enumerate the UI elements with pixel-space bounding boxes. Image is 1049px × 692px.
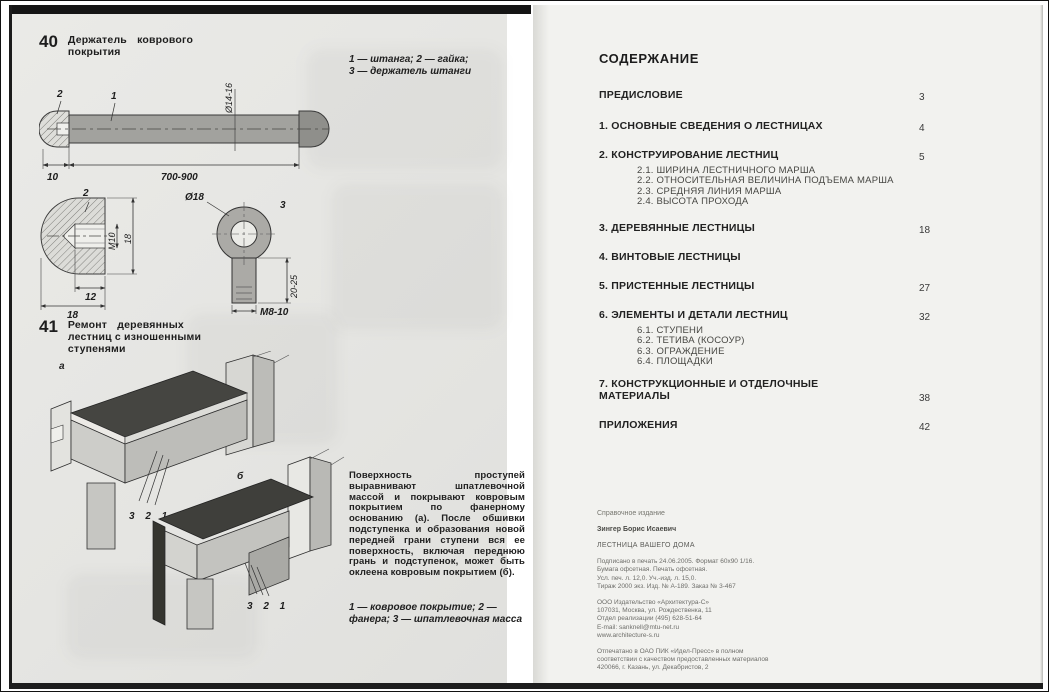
toc-page-number: 5 xyxy=(919,152,925,163)
toc-label: 7. КОНСТРУКЦИОННЫЕ И ОТДЕЛОЧНЫЕ МАТЕРИАЛ… xyxy=(599,378,859,402)
figure-41-text: Поверхность проступей выравнивают шпатле… xyxy=(349,471,525,579)
dim-rod-length: 700-900 xyxy=(161,172,198,183)
table-of-contents: ПРЕДИСЛОВИЕ 3 1. ОСНОВНЫЕ СВЕДЕНИЯ О ЛЕС… xyxy=(599,85,1009,444)
toc-label: ПРИЛОЖЕНИЯ xyxy=(599,419,678,431)
toc-page-number: 3 xyxy=(919,92,925,103)
toc-page-number: 38 xyxy=(919,393,930,404)
toc-row: ПРИЛОЖЕНИЯ 42 xyxy=(599,415,1009,433)
scan-bottom-edge xyxy=(9,683,1043,689)
dim-holder-stem: 20-25 xyxy=(289,274,299,299)
scan-top-edge xyxy=(9,5,531,14)
toc-row: 6. ЭЛЕМЕНТЫ И ДЕТАЛИ ЛЕСТНИЦ 32 6.1. СТУ… xyxy=(599,305,1009,367)
toc-row: ПРЕДИСЛОВИЕ 3 xyxy=(599,85,1009,103)
left-page: 40 Держатель коврового покрытия 1 — штан… xyxy=(12,14,507,683)
callout-1: 1 xyxy=(111,91,117,102)
printer-info: Отпечатано в ОАО ПИК «Идел-Пресс» в полн… xyxy=(597,648,897,673)
bleedthrough-ghost xyxy=(332,184,502,329)
toc-page-number: 27 xyxy=(919,283,930,294)
toc-page-number: 32 xyxy=(919,312,930,323)
label-b: б xyxy=(237,470,244,482)
toc-label: 1. ОСНОВНЫЕ СВЕДЕНИЯ О ЛЕСТНИЦАХ xyxy=(599,120,823,132)
right-page: СОДЕРЖАНИЕ ПРЕДИСЛОВИЕ 3 1. ОСНОВНЫЕ СВЕ… xyxy=(533,5,1043,683)
toc-row: 5. ПРИСТЕННЫЕ ЛЕСТНИЦЫ 27 xyxy=(599,276,1009,294)
nut-holder-drawing: 2 M10 18 12 18 xyxy=(39,186,319,321)
publisher-info: ООО Издательство «Архитектура-С» 107031,… xyxy=(597,599,897,641)
toc-row: 1. ОСНОВНЫЕ СВЕДЕНИЯ О ЛЕСТНИЦАХ 4 xyxy=(599,116,1009,134)
toc-label: 2. КОНСТРУИРОВАНИЕ ЛЕСТНИЦ xyxy=(599,149,778,161)
scan-right-edge xyxy=(1040,5,1043,689)
toc-page-number: 4 xyxy=(919,123,925,134)
toc-label: ПРЕДИСЛОВИЕ xyxy=(599,89,683,101)
dim-nut-thread: M10 xyxy=(107,232,117,250)
rod-drawing: Ø14-16 2 1 10 700-900 xyxy=(39,81,339,186)
figure-40-legend: 1 — штанга; 2 — гайка; 3 — держатель шта… xyxy=(349,54,514,78)
figure-41-number: 41 xyxy=(39,319,58,355)
book-title: ЛЕСТНИЦА ВАШЕГО ДОМА xyxy=(597,542,897,549)
page-crease xyxy=(533,5,549,683)
toc-subitem: 2.4. ВЫСОТА ПРОХОДА xyxy=(637,197,1009,207)
dim-rod-end: 10 xyxy=(47,172,59,183)
toc-label: 4. ВИНТОВЫЕ ЛЕСТНИЦЫ xyxy=(599,251,741,263)
callouts-b: 3 2 1 xyxy=(247,601,289,612)
figure-41-title: Ремонт деревянных лестниц с изношенными … xyxy=(68,319,201,355)
toc-row: 4. ВИНТОВЫЕ ЛЕСТНИЦЫ xyxy=(599,247,1009,265)
dim-rod-diameter: Ø14-16 xyxy=(224,83,234,114)
holder-callout: 3 xyxy=(280,200,286,211)
toc-row: 2. КОНСТРУИРОВАНИЕ ЛЕСТНИЦ 5 2.1. ШИРИНА… xyxy=(599,145,1009,207)
author-name: Зингер Борис Исаевич xyxy=(597,526,897,533)
toc-label: 5. ПРИСТЕННЫЕ ЛЕСТНИЦЫ xyxy=(599,280,754,292)
spread-gutter xyxy=(507,5,533,689)
toc-subitem: 6.4. ПЛОЩАДКИ xyxy=(637,357,1009,367)
steps-drawing: а 3 2 1 б xyxy=(41,351,346,636)
figure-40-number: 40 xyxy=(39,34,58,58)
toc-label: 3. ДЕРЕВЯННЫЕ ЛЕСТНИЦЫ xyxy=(599,222,755,234)
toc-row: 7. КОНСТРУКЦИОННЫЕ И ОТДЕЛОЧНЫЕ МАТЕРИАЛ… xyxy=(599,378,1009,404)
toc-row: 3. ДЕРЕВЯННЫЕ ЛЕСТНИЦЫ 18 xyxy=(599,218,1009,236)
print-info: Подписано в печать 24.06.2005. Формат 60… xyxy=(597,558,897,592)
figure-40-header: 40 Держатель коврового покрытия xyxy=(39,34,193,58)
colophon: Справочное издание Зингер Борис Исаевич … xyxy=(597,510,897,680)
toc-page-number: 18 xyxy=(919,225,930,236)
edition-type: Справочное издание xyxy=(597,510,897,517)
callout-2: 2 xyxy=(56,89,63,100)
nut-callout: 2 xyxy=(82,188,89,199)
toc-page-number: 42 xyxy=(919,422,930,433)
book-scan: 40 Держатель коврового покрытия 1 — штан… xyxy=(0,0,1049,692)
dim-nut-hole: 12 xyxy=(85,292,97,303)
figure-41-legend: 1 — ковровое покрытие; 2 — фанера; 3 — ш… xyxy=(349,602,525,626)
dim-nut-height: 18 xyxy=(123,234,133,244)
toc-heading: СОДЕРЖАНИЕ xyxy=(599,51,699,66)
figure-41-header: 41 Ремонт деревянных лестниц с изношенны… xyxy=(39,319,201,355)
toc-label: 6. ЭЛЕМЕНТЫ И ДЕТАЛИ ЛЕСТНИЦ xyxy=(599,309,788,321)
label-a: а xyxy=(59,361,65,372)
dim-holder-diameter: Ø18 xyxy=(185,192,204,203)
scan-area: 40 Держатель коврового покрытия 1 — штан… xyxy=(9,5,1043,689)
dim-holder-thread: M8-10 xyxy=(260,307,289,318)
figure-40-title: Держатель коврового покрытия xyxy=(68,34,193,58)
